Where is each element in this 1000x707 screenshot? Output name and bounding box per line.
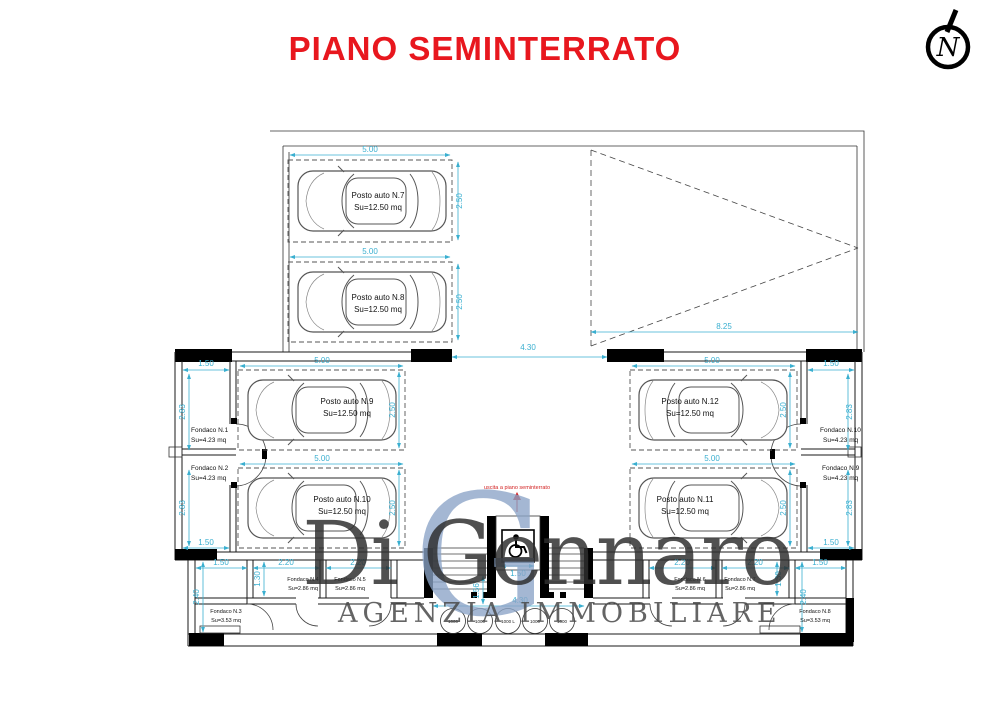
- dim-aisle-opening: 4.30: [512, 596, 528, 605]
- car-top-view: [298, 267, 446, 337]
- floor-plan-page: 8.25 5.00 2.50 Posto auto N.7 Su=12.50 m…: [0, 0, 1000, 707]
- stall-area: Su=12.50 mq: [318, 507, 366, 516]
- storage-area: Su=2.86 mq: [675, 586, 705, 592]
- dim-outer-depth: 2.40: [192, 589, 201, 605]
- dim-stall-depth: 2.50: [455, 193, 464, 209]
- storage-area: Su=2.86 mq: [288, 586, 318, 592]
- dim-corridor-width: 1.50: [823, 538, 839, 547]
- storage-area: Su=4.23 mq: [191, 437, 227, 444]
- dim-lift-width: 1.50: [510, 569, 526, 578]
- parking-stall-7: 5.00 2.50 Posto auto N.7 Su=12.50 mq: [288, 145, 464, 242]
- dim-corridor-width: 1.50: [812, 558, 828, 567]
- dim-corridor-width: 1.50: [213, 558, 229, 567]
- storage-area: Su=4.23 mq: [823, 475, 859, 482]
- parking-stall-12: 5.00 2.50 Posto auto N.12 Su=12.50 mq: [630, 356, 797, 450]
- storage-area: Su=2.86 mq: [725, 586, 755, 592]
- dim-stall-width: 5.00: [704, 454, 720, 463]
- ramp-symbol: [591, 150, 858, 348]
- exit-arrow: [513, 492, 521, 512]
- dim-stall-depth: 2.50: [779, 500, 788, 516]
- upper-section: 8.25 5.00 2.50 Posto auto N.7 Su=12.50 m…: [270, 131, 864, 352]
- dim-room-depth: 1.30: [253, 571, 262, 587]
- stall-area: Su=12.50 mq: [666, 409, 714, 418]
- dim-stall-width: 5.00: [362, 247, 378, 256]
- storage-label: Fondaco N.2: [191, 465, 229, 472]
- dim-aisle-opening: 4.30: [520, 343, 536, 352]
- storage-label: Fondaco N.8: [799, 609, 831, 615]
- north-label: N: [936, 33, 961, 63]
- tank-label: 1000: [557, 619, 568, 624]
- stall-label: Posto auto N.11: [657, 495, 714, 504]
- car-top-view: [298, 166, 446, 236]
- floor-plan-drawing: 8.25 5.00 2.50 Posto auto N.7 Su=12.50 m…: [0, 0, 1000, 707]
- parking-stall-11: 5.00 2.50 Posto auto N.11 Su=12.50 mq: [630, 454, 797, 548]
- stall-area: Su=12.50 mq: [661, 507, 709, 516]
- wheelchair-icon: [502, 530, 534, 562]
- storage-label: Fondaco N.3: [210, 609, 242, 615]
- storage-label: Fondaco N.5: [334, 577, 366, 583]
- dim-corridor-depth: 2.83: [845, 404, 854, 420]
- storage-label: Fondaco N.4: [287, 577, 319, 583]
- storage-label: Fondaco N.1: [191, 427, 229, 434]
- stall-label: Posto auto N.8: [352, 293, 405, 302]
- stall-area: Su=12.50 mq: [323, 409, 371, 418]
- stall-label: Posto auto N.7: [352, 191, 405, 200]
- storage-area: Su=3.53 mq: [800, 618, 830, 624]
- parking-stall-8: 5.00 2.50 Posto auto N.8 Su=12.50 mq: [288, 247, 464, 342]
- storage-area: Su=4.23 mq: [823, 437, 859, 444]
- dim-stall-depth: 2.50: [388, 402, 397, 418]
- dim-corridor-depth: 2.83: [845, 500, 854, 516]
- tank-label: 1000: [448, 619, 459, 624]
- storage-label: Fondaco N.10: [820, 427, 861, 434]
- stall-label: Posto auto N.9: [321, 397, 374, 406]
- stall-area: Su=12.50 mq: [354, 305, 402, 314]
- dim-room-width: 2.20: [674, 558, 690, 567]
- car-top-view: [248, 375, 396, 445]
- dim-stall-width: 5.00: [314, 356, 330, 365]
- garage-band: 4.30: [169, 343, 862, 560]
- dim-stall-depth: 2.50: [779, 402, 788, 418]
- dim-stall-width: 5.00: [362, 145, 378, 154]
- stair-lift-core: uscita a piano seminterrato 1.50: [424, 485, 593, 598]
- tank-label: 1000: [475, 619, 486, 624]
- dim-corridor-depth: 2.83: [178, 500, 187, 516]
- stall-label: Posto auto N.10: [313, 495, 371, 504]
- dim-room-width: 2.20: [747, 558, 763, 567]
- dim-corridor-width: 1.50: [198, 359, 214, 368]
- page-title: PIANO SEMINTERRATO: [235, 30, 735, 68]
- bench: [760, 626, 800, 633]
- dim-stall-depth: 2.50: [388, 500, 397, 516]
- tank-label: 1000 L: [501, 619, 515, 624]
- north-arrow-icon: N: [928, 10, 968, 67]
- dim-outer-depth: 2.40: [799, 589, 808, 605]
- dim-stair-depth: 1.56: [472, 583, 481, 599]
- dim-stall-depth: 2.50: [455, 294, 464, 310]
- storage-area: Su=2.86 mq: [335, 586, 365, 592]
- stall-area: Su=12.50 mq: [354, 203, 402, 212]
- stair-steps-right: [549, 554, 584, 589]
- storage-label: Fondaco N.7: [724, 577, 756, 583]
- dim-corridor-width: 1.50: [198, 538, 214, 547]
- dim-room-depth: 1.30: [774, 571, 783, 587]
- storage-area: Su=4.23 mq: [191, 475, 227, 482]
- parking-stall-10: 5.00 2.50 Posto auto N.10 Su=12.50 mq: [238, 454, 405, 548]
- dim-room-width: 2.20: [278, 558, 294, 567]
- storage-label: Fondaco N.9: [822, 465, 860, 472]
- storage-area: Su=3.53 mq: [211, 618, 241, 624]
- dim-room-width: 2.20: [350, 558, 366, 567]
- water-tanks: 1000 1000 1000 L 1000 1000: [441, 609, 575, 634]
- dim-ramp-length: 8.25: [716, 322, 732, 331]
- dim-corridor-depth: 2.83: [178, 404, 187, 420]
- exit-note: uscita a piano seminterrato: [484, 485, 550, 491]
- parking-stall-9: 5.00 2.50 Posto auto N.9 Su=12.50 mq: [238, 356, 405, 450]
- bench: [200, 626, 240, 633]
- dim-stall-width: 5.00: [704, 356, 720, 365]
- tank-label: 1000: [530, 619, 541, 624]
- stall-label: Posto auto N.12: [661, 397, 719, 406]
- storage-label: Fondaco N.6: [674, 577, 706, 583]
- dim-corridor-width: 1.50: [823, 359, 839, 368]
- dim-stall-width: 5.00: [314, 454, 330, 463]
